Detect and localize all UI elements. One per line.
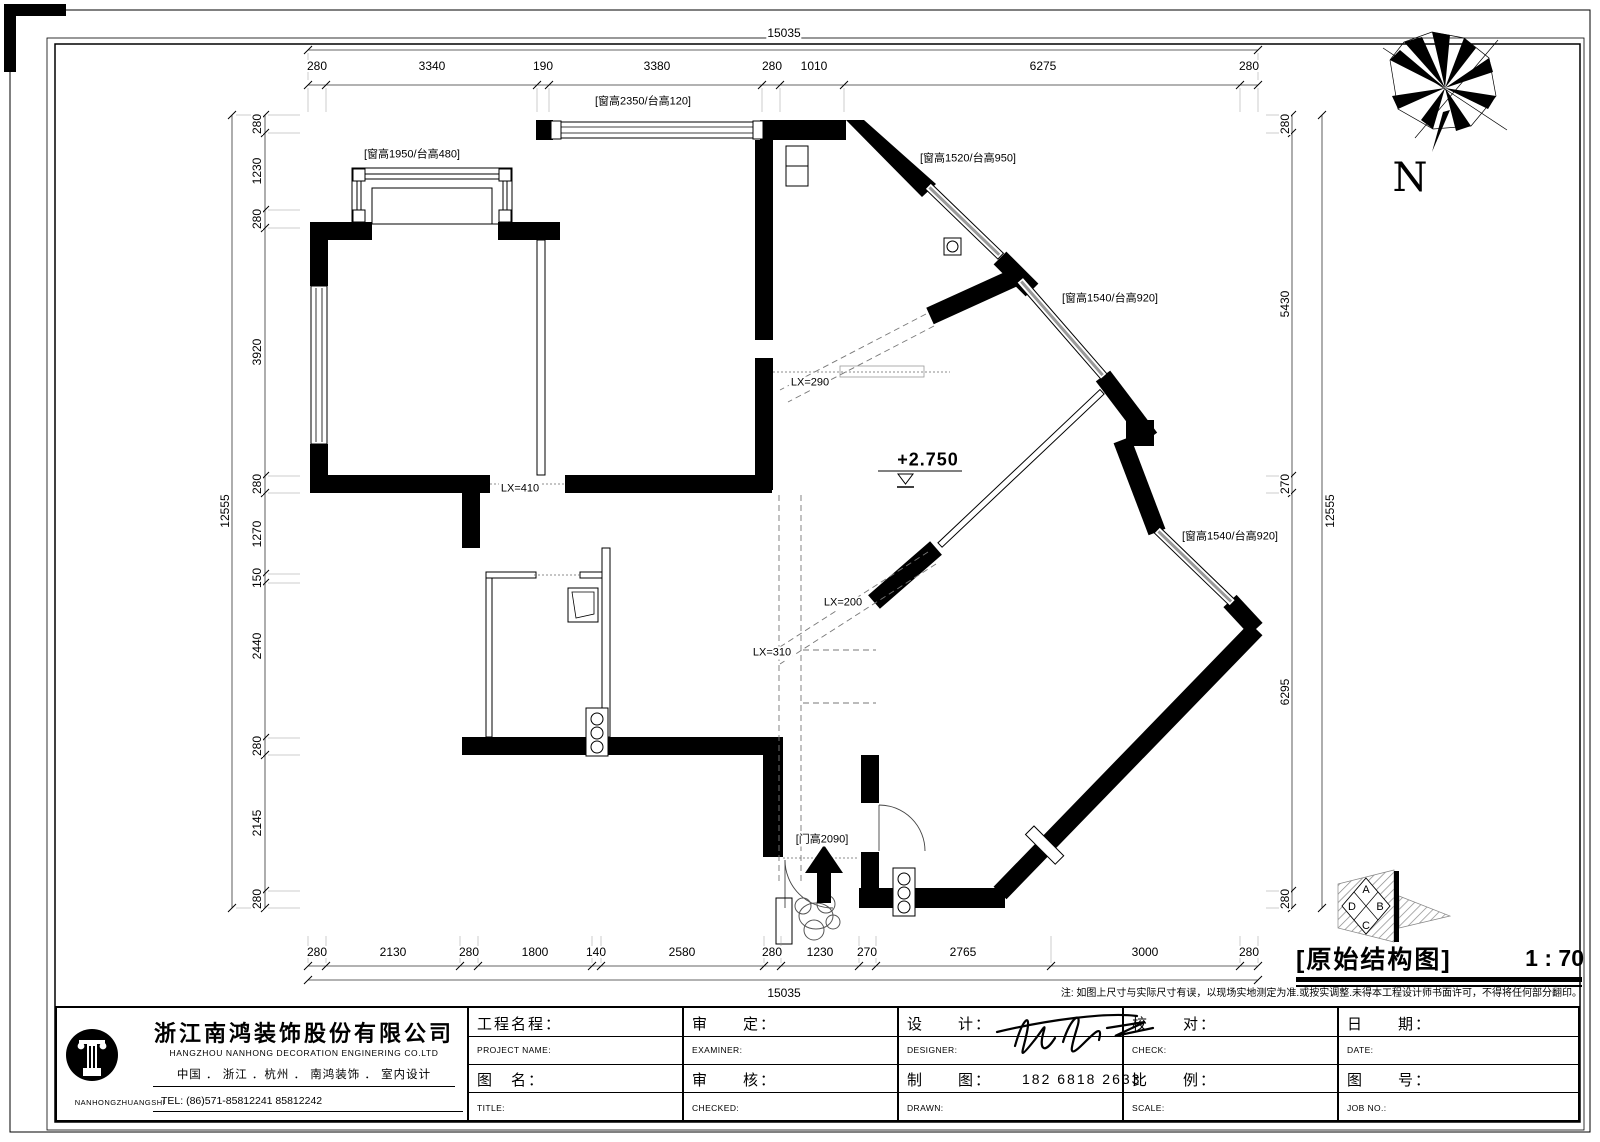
field-designer-en: DESIGNER:: [907, 1045, 957, 1055]
dim-label: 270: [1279, 473, 1291, 495]
wall-notch: [1126, 420, 1154, 446]
dim-label: 6275: [1029, 60, 1058, 72]
field-examiner-cn: 审 定：: [692, 1013, 777, 1034]
dim-label: 150: [251, 567, 263, 589]
dim-label: 280: [251, 888, 263, 910]
drawing-scale: 1 : 70: [1525, 945, 1584, 972]
company-name-cn: 浙江南鸿装饰股份有限公司: [145, 1016, 463, 1048]
field-examiner-en: EXAMINER:: [692, 1045, 742, 1055]
dim-label: 2580: [668, 946, 697, 958]
field-title-en: TITLE:: [477, 1103, 505, 1113]
dim-total-left: 12555: [219, 493, 231, 528]
drawing-sheet: A B C D 15035 280 3340 190 3380 280 1010…: [0, 0, 1600, 1142]
dim-label: 280: [306, 946, 328, 958]
company-tel: TEL: (86)571-85812241 85812242: [153, 1092, 463, 1112]
dim-total-right: 12555: [1324, 493, 1336, 528]
dim-label: 280: [761, 60, 783, 72]
dim-label: 1800: [521, 946, 550, 958]
lx-label: LX=200: [822, 597, 864, 610]
door-label: [门高2090]: [794, 834, 851, 847]
field-project-name-cn: 工程名程：: [477, 1013, 562, 1034]
north-label: N: [1393, 155, 1428, 201]
field-checked-cn: 审 核：: [692, 1069, 777, 1090]
elevation-marker: A B C D: [1338, 870, 1450, 942]
dim-label: 280: [1238, 946, 1260, 958]
titleblock-row-line: [467, 1092, 1578, 1093]
field-title-cn: 图 名：: [477, 1069, 545, 1090]
dim-label: 3380: [643, 60, 672, 72]
dim-label: 1270: [251, 520, 263, 549]
bay-window: [352, 168, 512, 224]
dim-total-bottom: 15035: [766, 987, 801, 999]
title-underline-thick: [1296, 977, 1582, 982]
dim-label: 1010: [800, 60, 829, 72]
dim-label: 2145: [251, 809, 263, 838]
company-name-en: HANGZHOU NANHONG DECORATION ENGINERING C…: [145, 1048, 463, 1058]
window-label: [窗高1540/台高920]: [1060, 293, 1160, 306]
elev-letter-d: D: [1348, 901, 1356, 913]
window-label: [窗高1950/台高480]: [362, 149, 462, 162]
level-value: +2.750: [895, 450, 961, 471]
field-check-en: CHECK:: [1132, 1045, 1167, 1055]
dim-label: 2130: [379, 946, 408, 958]
field-check-cn: 校 对：: [1132, 1013, 1217, 1034]
dim-label: 280: [458, 946, 480, 958]
company-logo: [65, 1028, 119, 1082]
lx-label: LX=290: [789, 377, 831, 390]
lx-label: LX=310: [751, 647, 793, 660]
window-diag-1520: [925, 183, 1003, 259]
field-date-cn: 日 期：: [1347, 1013, 1432, 1034]
dim-label: 280: [1279, 888, 1291, 910]
dim-label: 280: [306, 60, 328, 72]
entry-arrow: [805, 845, 843, 903]
elev-letter-b: B: [1376, 901, 1383, 913]
dim-total-top: 15035: [766, 27, 801, 39]
dim-label: 270: [856, 946, 878, 958]
partitions-thin: [486, 146, 1104, 737]
walls-solid: [310, 120, 1005, 908]
north-compass-icon: [1383, 32, 1507, 152]
dim-label: 280: [251, 473, 263, 495]
dim-label: 280: [1238, 60, 1260, 72]
field-date-en: DATE:: [1347, 1045, 1373, 1055]
dotted-lines: [490, 366, 950, 858]
general-note: 注: 如图上尺寸与实际尺寸有误，以现场实地测定为准.或按实调整.未得本工程设计师…: [1020, 984, 1582, 999]
window-label: [窗高1520/台高950]: [918, 153, 1018, 166]
field-checked-en: CHECKED:: [692, 1103, 739, 1113]
level-marker: [878, 471, 962, 487]
dim-label: 1230: [806, 946, 835, 958]
field-project-name-en: PROJECT NAME:: [477, 1045, 551, 1055]
window-label: [窗高2350/台高120]: [593, 96, 693, 109]
dim-label: 6295: [1279, 678, 1291, 707]
dim-label: 280: [251, 208, 263, 230]
field-drawn-en: DRAWN:: [907, 1103, 944, 1113]
company-line2: 中国 ． 浙江 ．杭州 ． 南鸿装饰 ． 室内设计: [153, 1066, 455, 1087]
dim-label: 140: [585, 946, 607, 958]
field-jobno-cn: 图 号：: [1347, 1069, 1432, 1090]
window-left-1950-glazing: [311, 286, 327, 444]
drawing-title: [原始结构图] 1 : 70: [1296, 942, 1584, 974]
field-scale-en: SCALE:: [1132, 1103, 1165, 1113]
dim-label: 3000: [1131, 946, 1160, 958]
field-drawn-cn: 制 图：: [907, 1069, 992, 1090]
field-drawn-value: 182 6818 2633: [1022, 1071, 1141, 1087]
elev-letter-c: C: [1362, 920, 1370, 932]
lx-label: LX=410: [499, 483, 541, 496]
field-jobno-en: JOB NO.:: [1347, 1103, 1387, 1113]
dim-label: 280: [251, 113, 263, 135]
dim-label: 3920: [251, 338, 263, 367]
dim-label: 1230: [251, 157, 263, 186]
drawing-title-text: [原始结构图]: [1296, 940, 1452, 976]
elev-letter-a: A: [1362, 884, 1370, 896]
dim-label: 280: [761, 946, 783, 958]
window-label: [窗高1540/台高920]: [1180, 531, 1280, 544]
field-scale-cn: 比 例：: [1132, 1069, 1217, 1090]
dim-label: 2440: [251, 632, 263, 661]
dim-label: 280: [251, 735, 263, 757]
dim-label: 2765: [949, 946, 978, 958]
dim-label: 280: [1279, 113, 1291, 135]
dim-label: 190: [532, 60, 554, 72]
dim-label: 3340: [418, 60, 447, 72]
field-designer-cn: 设 计：: [907, 1013, 992, 1034]
dim-label: 5430: [1279, 290, 1291, 319]
title-block: NANHONGZHUANGSHI 浙江南鸿装饰股份有限公司 HANGZHOU N…: [55, 1006, 1580, 1122]
window-top-2350: [551, 121, 763, 139]
